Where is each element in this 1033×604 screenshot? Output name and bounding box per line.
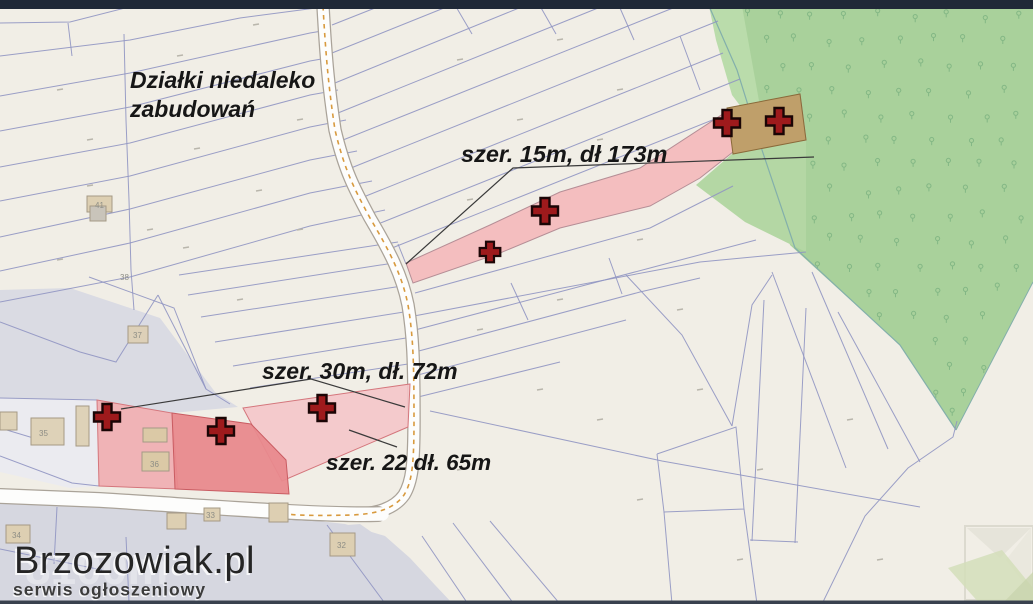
- svg-text:szer. 30m, dł. 72m: szer. 30m, dł. 72m: [262, 358, 458, 384]
- svg-text:Brzozowiak.pl: Brzozowiak.pl: [14, 540, 255, 582]
- svg-text:serwis ogłoszeniowy: serwis ogłoszeniowy: [13, 580, 206, 600]
- svg-text:zabudowań: zabudowań: [129, 96, 255, 122]
- svg-text:38: 38: [120, 273, 129, 282]
- svg-text:41: 41: [95, 201, 104, 210]
- svg-text:33: 33: [206, 511, 215, 520]
- svg-text:35: 35: [39, 429, 48, 438]
- svg-text:37: 37: [133, 331, 142, 340]
- svg-text:32: 32: [337, 541, 346, 550]
- svg-text:szer. 22 dł. 65m: szer. 22 dł. 65m: [326, 450, 491, 475]
- svg-text:szer. 15m, dł 173m: szer. 15m, dł 173m: [461, 141, 667, 167]
- svg-text:36: 36: [150, 460, 159, 469]
- svg-text:Działki niedaleko: Działki niedaleko: [130, 67, 315, 93]
- svg-text:34: 34: [12, 531, 21, 540]
